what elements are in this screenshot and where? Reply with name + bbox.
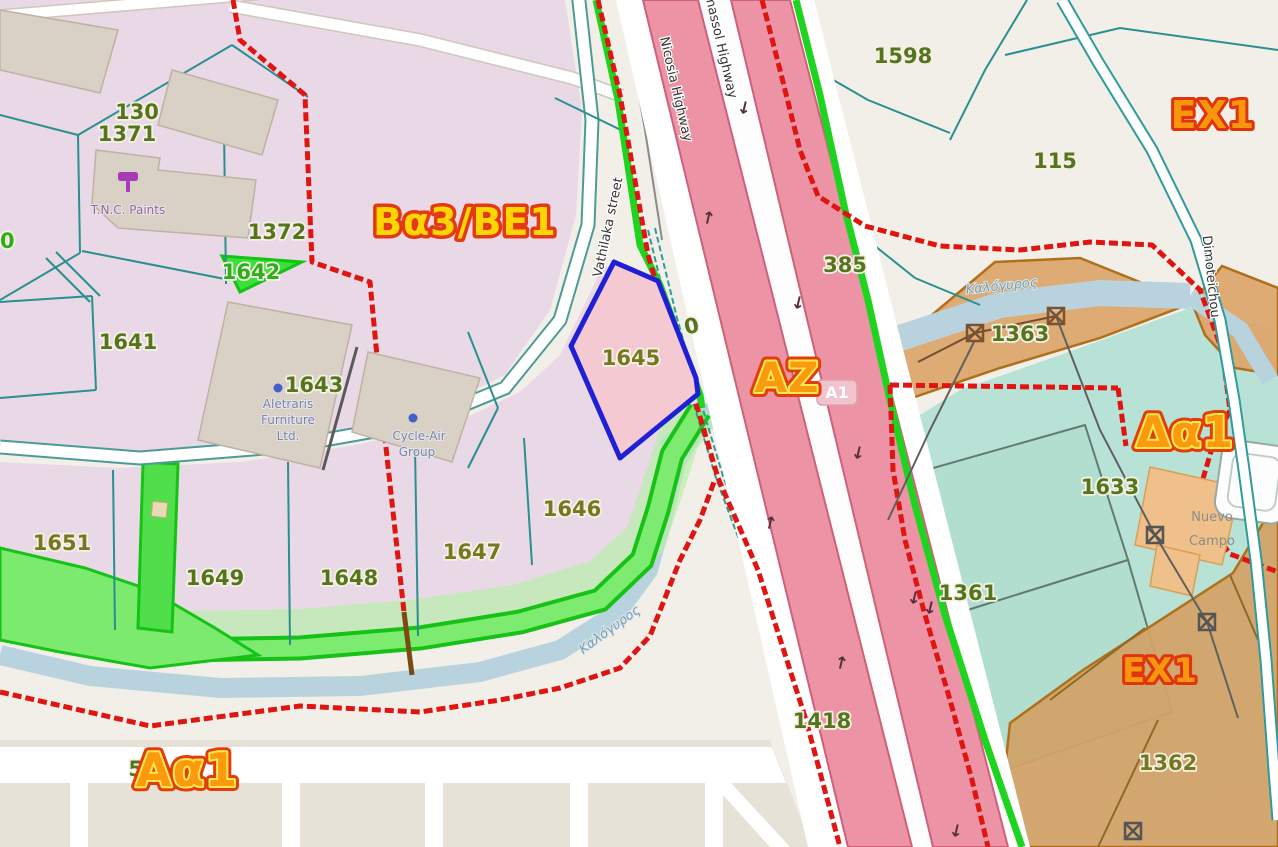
highway-shield-a1: A1 bbox=[817, 380, 857, 405]
parcel-label-1649: 1649 bbox=[186, 566, 244, 590]
parcel-label-1645: 1645 bbox=[602, 346, 660, 370]
zone-label-ba3-be1: Bα3/BE1 bbox=[373, 200, 557, 244]
parcel-label-1633: 1633 bbox=[1081, 475, 1139, 499]
poi-label-aletraris: Furniture bbox=[261, 413, 315, 427]
parcel-label-1361: 1361 bbox=[939, 581, 997, 605]
poi-label-nuevo-campo: Nuevo bbox=[1191, 510, 1233, 525]
parcel-label-115: 115 bbox=[1033, 149, 1077, 173]
parcel-label-385: 385 bbox=[823, 253, 867, 277]
zone-label-aa1: Aα1 bbox=[136, 743, 238, 797]
parcel-label-1362: 1362 bbox=[1139, 751, 1197, 775]
zone-label-ex1-top: EX1 bbox=[1171, 93, 1256, 137]
poi-label-nuevo-campo: Campo bbox=[1189, 534, 1235, 549]
parcel-label-1641: 1641 bbox=[99, 330, 157, 354]
parcel-label-1371: 1371 bbox=[98, 122, 156, 146]
parcel-label-1598: 1598 bbox=[874, 44, 932, 68]
green-strip bbox=[138, 462, 178, 632]
parcel-label-1372: 1372 bbox=[248, 220, 306, 244]
poi-label-aletraris: Ltd. bbox=[277, 429, 300, 443]
poi-label-tnc-paints: T.N.C. Paints bbox=[90, 203, 165, 217]
street bbox=[0, 747, 786, 783]
parcel-label-1648: 1648 bbox=[320, 566, 378, 590]
parcel-label-1647: 1647 bbox=[443, 540, 501, 564]
parcel-label-1363: 1363 bbox=[991, 322, 1049, 346]
parcel-label-1642: 1642 bbox=[222, 260, 280, 284]
poi-label-cycle-air: Cycle-Air bbox=[392, 429, 445, 443]
map-canvas[interactable]: ↑ ↑ ↑ ↓ ↓ ↓ ↓ ↓ ↓ A1 130 1371 1372 1642 … bbox=[0, 0, 1278, 847]
parcel-label-0-left: 0 bbox=[0, 229, 15, 253]
svg-text:A1: A1 bbox=[825, 383, 849, 402]
zone-label-da1: Δα1 bbox=[1136, 407, 1234, 458]
poi-dot-icon bbox=[274, 384, 283, 393]
parcel-label-130: 130 bbox=[115, 100, 159, 124]
parcel-label-1646: 1646 bbox=[543, 497, 601, 521]
zone-label-az: AZ bbox=[755, 353, 820, 402]
zone-label-ex1-bottom: EX1 bbox=[1122, 651, 1198, 691]
poi-label-cycle-air: Group bbox=[399, 445, 436, 459]
poi-label-aletraris: Aletraris bbox=[263, 397, 313, 411]
small-building bbox=[151, 501, 167, 517]
parcel-label-1418: 1418 bbox=[793, 709, 851, 733]
parcel-label-1643: 1643 bbox=[285, 373, 343, 397]
parcel-label-1651: 1651 bbox=[33, 531, 91, 555]
poi-dot-icon bbox=[409, 414, 418, 423]
